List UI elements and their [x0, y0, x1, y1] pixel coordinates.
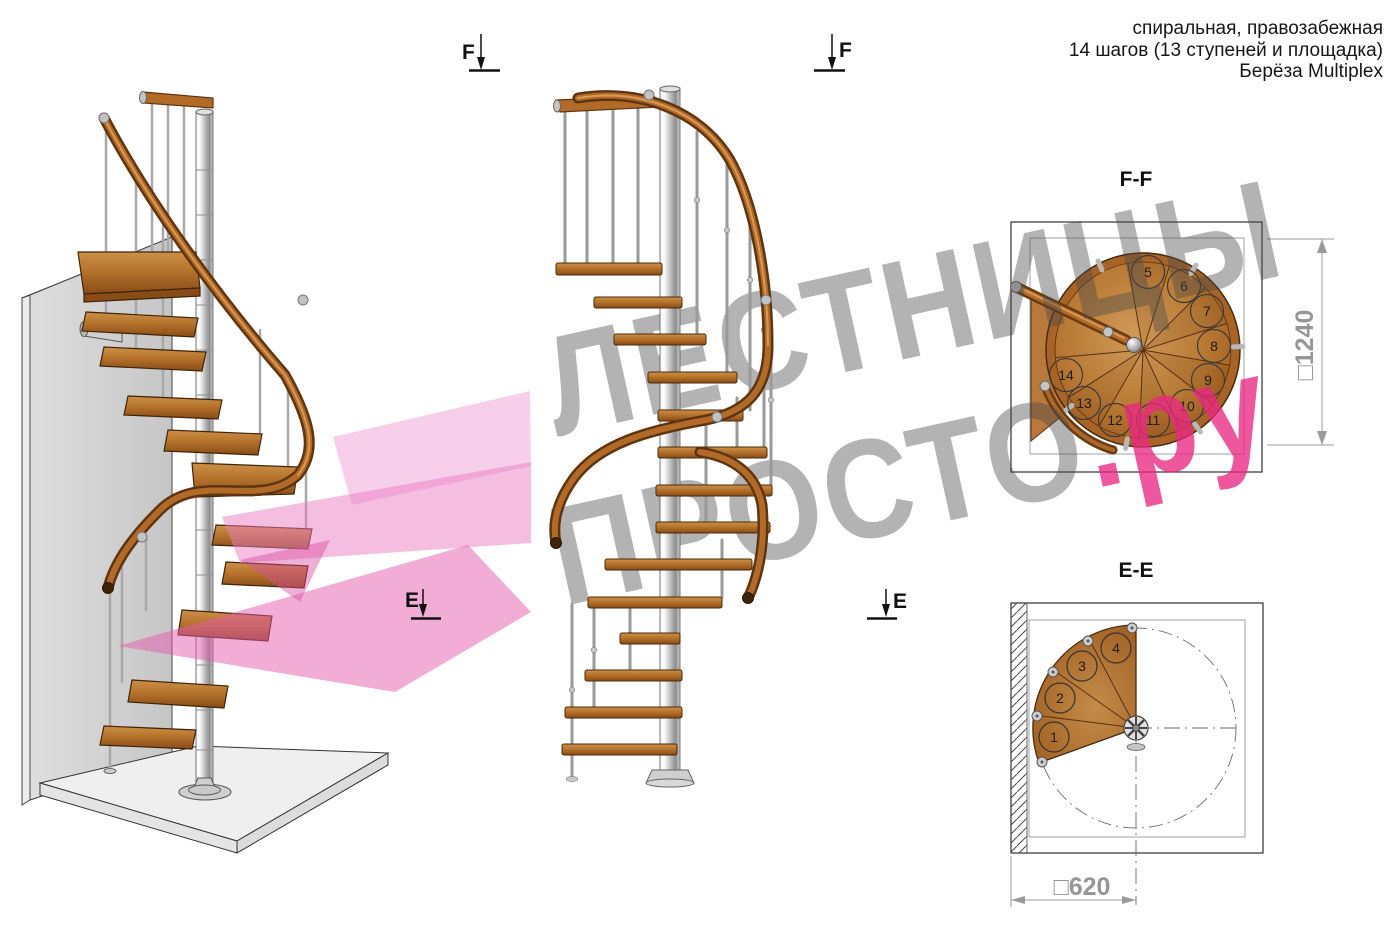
- arrow-down-icon: [828, 57, 836, 70]
- rendered-views-layer: F F E E: [0, 0, 1400, 934]
- arrow-down-icon: [477, 57, 485, 70]
- landing-3d: [78, 252, 200, 294]
- baluster-base-icon: [104, 769, 116, 774]
- rail-collar-icon: [761, 295, 771, 305]
- title-type: спиральная, правозабежная: [1069, 18, 1383, 40]
- view-elevation: [551, 86, 774, 787]
- rail-collar-icon: [712, 412, 722, 422]
- rail-collar-icon: [137, 532, 147, 542]
- marker-letter: E: [405, 589, 419, 612]
- title-material: Берёза Multiplex: [1069, 61, 1383, 83]
- section-marker-f-left: F: [462, 34, 500, 71]
- view-3d: [22, 92, 388, 854]
- rail-end-cap-icon: [103, 583, 114, 594]
- title-steps: 14 шагов (13 ступеней и площадка): [1069, 40, 1383, 62]
- section-marker-e-right: E: [867, 589, 907, 619]
- arrow-down-icon: [882, 604, 890, 617]
- rail-collar-icon: [644, 90, 654, 100]
- marker-letter: E: [893, 590, 907, 613]
- rail-end-cap-icon: [743, 593, 754, 604]
- top-rail-3d: [140, 92, 214, 109]
- rail-end-cap-icon: [551, 538, 562, 549]
- marker-letter: F: [462, 41, 475, 64]
- landing-elevation: [556, 263, 662, 275]
- marker-letter: F: [839, 39, 852, 62]
- rail-collar-icon: [298, 295, 308, 305]
- section-marker-f-right: F: [814, 34, 852, 71]
- title-block: спиральная, правозабежная 14 шагов (13 с…: [1069, 18, 1383, 83]
- rail-cap-icon: [99, 113, 109, 123]
- drawing-sheet: F-F: [0, 0, 1400, 934]
